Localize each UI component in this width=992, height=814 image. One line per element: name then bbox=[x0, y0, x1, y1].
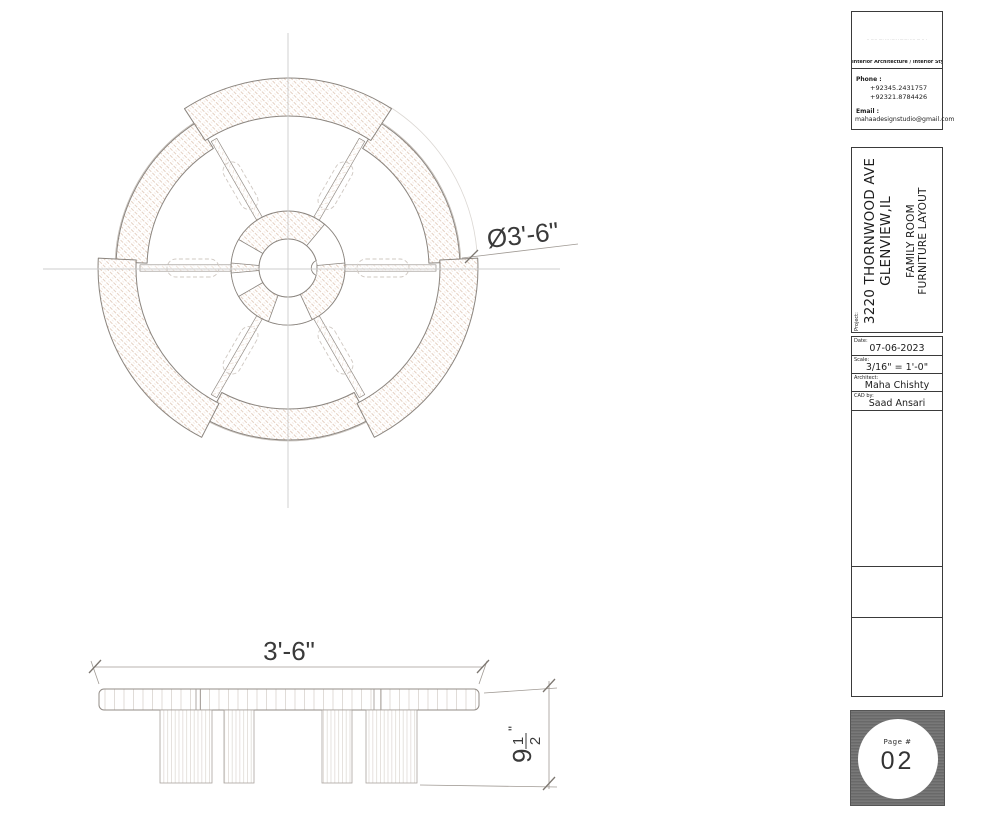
elevation-height-label: 9 1 2 " bbox=[505, 726, 544, 763]
drawing-title-line-2: FURNITURE LAYOUT bbox=[917, 148, 929, 334]
titleblock-contact: Phone : +92345.2431757 +92321.8784426 Em… bbox=[852, 76, 942, 123]
meta-row-scale: Scale: 3/16" = 1'-0" bbox=[852, 356, 942, 374]
titleblock-project: Project: 3220 THORNWOOD AVE GLENVIEW,IL … bbox=[851, 147, 943, 333]
elevation-legs bbox=[160, 710, 417, 783]
email-label: Email : bbox=[856, 108, 942, 115]
project-address: 3220 THORNWOOD AVE GLENVIEW,IL bbox=[862, 148, 894, 334]
segment-extended bbox=[98, 258, 219, 437]
svg-text:1: 1 bbox=[510, 737, 527, 745]
segment bbox=[116, 122, 213, 263]
drawing-title: FAMILY ROOM FURNITURE LAYOUT bbox=[905, 148, 929, 334]
elevation-width-label: 3'-6" bbox=[263, 636, 315, 666]
svg-text:2: 2 bbox=[527, 737, 544, 745]
page-label: Page # bbox=[858, 719, 938, 746]
phone-number-2: +92321.8784426 bbox=[870, 93, 942, 102]
segment bbox=[363, 122, 460, 263]
phone-label: Phone : bbox=[856, 76, 942, 83]
meta-blank-box-3 bbox=[852, 618, 942, 698]
scale-value: 3/16" = 1'-0" bbox=[852, 362, 942, 373]
meta-blank-box-2 bbox=[852, 567, 942, 618]
date-value: 07-06-2023 bbox=[852, 343, 942, 354]
plan-diameter-dimension: Ø3'-6" bbox=[462, 216, 578, 263]
architect-value: Maha Chishty bbox=[852, 380, 942, 391]
elevation-tabletop bbox=[99, 689, 479, 710]
meta-blank-box-1 bbox=[852, 411, 942, 567]
email-address: mahaadesignstudio@gmail.com bbox=[855, 116, 942, 123]
titleblock-logo-contact: ·· ····· ···· ··· ····· ········ ···· ··… bbox=[851, 11, 943, 130]
svg-text:": " bbox=[505, 726, 521, 731]
elevation-width-dimension: 3'-6" bbox=[89, 636, 489, 684]
page-number: 02 bbox=[858, 747, 938, 776]
titleblock-logo: ·· ····· ···· ··· ····· ········ ···· ··… bbox=[852, 12, 942, 69]
cad-by-value: Saad Ansari bbox=[852, 398, 942, 409]
phone-number-1: +92345.2431757 bbox=[870, 84, 942, 93]
elevation-view: 3'-6" bbox=[89, 636, 557, 790]
studio-services: Interior Architecture / Interior Styling… bbox=[852, 60, 942, 65]
address-line-2: GLENVIEW,IL bbox=[878, 148, 894, 334]
project-rotated-text: Project: 3220 THORNWOOD AVE GLENVIEW,IL … bbox=[852, 148, 944, 334]
drawing-title-line-1: FAMILY ROOM bbox=[905, 148, 917, 334]
meta-row-cad-by: CAD by: Saad Ansari bbox=[852, 392, 942, 411]
plan-view: Ø3'-6" bbox=[43, 33, 578, 508]
page-number-circle: Page # 02 bbox=[858, 719, 938, 799]
plan-diameter-label: Ø3'-6" bbox=[485, 216, 560, 254]
svg-text:9: 9 bbox=[507, 749, 537, 763]
address-line-1: 3220 THORNWOOD AVE bbox=[862, 148, 878, 334]
meta-row-date: Date: 07-06-2023 bbox=[852, 337, 942, 356]
studio-tagline: ·· ····· ···· ··· ····· ········ ···· ··… bbox=[852, 38, 942, 42]
drawing-sheet: Ø3'-6" 3'-6" bbox=[0, 0, 992, 814]
meta-row-architect: Architect: Maha Chishty bbox=[852, 374, 942, 392]
project-label: Project: bbox=[854, 312, 860, 331]
furniture-drawing-canvas: Ø3'-6" 3'-6" bbox=[0, 0, 850, 814]
segment-extended bbox=[357, 258, 478, 437]
titleblock-meta: Date: 07-06-2023 Scale: 3/16" = 1'-0" Ar… bbox=[851, 336, 943, 697]
titleblock-page: Page # 02 bbox=[850, 710, 945, 806]
